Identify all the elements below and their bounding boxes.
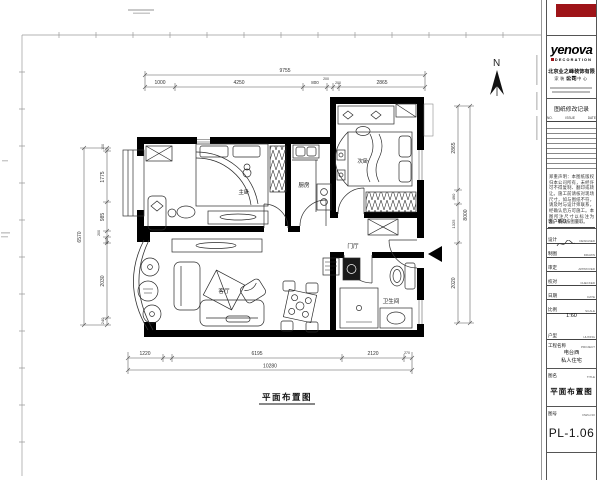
dim-top-5: 2865: [376, 80, 387, 86]
sheet-inner-border: [541, 0, 542, 480]
drawing-sheet: N: [0, 0, 600, 480]
dim-bottom-1: 6195: [251, 351, 262, 357]
bathroom-furniture: [323, 258, 415, 328]
dim-left-2: 985: [100, 213, 106, 222]
room-label-living: 客厅: [218, 287, 230, 295]
field-date: 日期 DATE: [547, 285, 596, 300]
room-label-kitchen: 厨房: [298, 181, 310, 189]
dim-left-5: 2030: [100, 275, 106, 286]
margin-note-blobs: [1, 9, 538, 237]
dim-top-1: 4250: [233, 80, 244, 86]
second-bedroom-furniture: [335, 104, 416, 212]
dim-left-0: 100: [101, 144, 105, 150]
field-title: 图名 TITLE: [547, 369, 596, 379]
revision-row: [547, 163, 596, 169]
brand-logo-sub: DECORATION: [546, 58, 597, 62]
field-dwgno: 图号 DWG.NO: [547, 407, 596, 417]
dim-top-4: 200: [335, 81, 341, 85]
drawing-title-value: 平面布置图: [546, 380, 597, 404]
entry-marker: [428, 246, 442, 262]
room-label-bed2: 次卧: [357, 157, 369, 165]
field-project: 工程名称 PROJECT: [547, 339, 596, 349]
foyer-furniture: [368, 219, 398, 235]
field-approved: 审定 APPROVED: [547, 257, 596, 272]
dim-left-3: 200: [97, 230, 101, 236]
revision-table-title: 图纸修改记录: [546, 104, 597, 113]
dim-bottom-3: 270: [404, 351, 410, 355]
address-blob: [552, 91, 590, 93]
plan-caption: 平面布置图: [259, 392, 315, 404]
dim-right-0: 2865: [451, 142, 457, 153]
field-checked: 校对 CHECKED: [547, 271, 596, 286]
dim-left-4: 200: [105, 238, 109, 244]
walls: [137, 97, 424, 337]
field-huxing: 户型 HUXING: [547, 325, 596, 340]
project-value: 电台西 私人住宅: [546, 350, 597, 366]
sheet-frame: [19, 32, 541, 476]
north-arrow: N: [490, 58, 504, 96]
dim-top-total: 9755: [279, 68, 290, 74]
dim-right-total: 8000: [463, 209, 469, 220]
dim-left-total: 6570: [77, 231, 83, 242]
dim-bottom-0: 1220: [139, 351, 150, 357]
brand-red-block: [556, 4, 596, 17]
dim-bottom-2: 2120: [367, 351, 378, 357]
living-room-furniture: [138, 239, 318, 332]
dim-right-3: 2020: [451, 277, 457, 288]
room-label-bath: 卫生间: [383, 297, 400, 305]
brand-logo: yenova: [546, 42, 597, 57]
titleblock: yenova DECORATION 北京业之峰装饰有限公司 家装设计中心 图纸修…: [546, 0, 597, 480]
room-label-foyer: 门厅: [347, 242, 359, 250]
revision-table-header: NO. ISSUE DATE: [547, 116, 596, 122]
field-drawn: 制图 DRAWN: [547, 243, 596, 258]
floor-plan-canvas: N: [0, 0, 546, 480]
dim-right-2: 1325: [451, 219, 456, 229]
dim-top-2: 800: [311, 80, 319, 85]
north-label: N: [493, 58, 500, 69]
dim-bottom-total: 10280: [263, 364, 277, 370]
dim-top-0: 1000: [154, 80, 165, 86]
master-bedroom-furniture: [146, 144, 286, 230]
dim-right-1: 490: [451, 193, 456, 200]
address-blob: [550, 87, 592, 89]
scale-value: 1:60: [546, 313, 597, 319]
kitchen-furniture: [292, 145, 331, 212]
brand-red-square-icon: [551, 58, 554, 61]
svg-text:平面布置图: 平面布置图: [262, 392, 312, 402]
dim-left-1: 1775: [100, 171, 106, 182]
client-confirm-row: 客户确认: [548, 218, 595, 228]
dim-left-6: 240: [100, 317, 105, 324]
company-dept: 家装设计中心: [546, 76, 597, 82]
field-scale: 比例 SCALE: [547, 299, 596, 314]
dim-top-3: 200: [323, 77, 329, 81]
room-label-master: 主卧: [238, 188, 250, 196]
drawing-number: PL-1.06: [546, 418, 597, 448]
